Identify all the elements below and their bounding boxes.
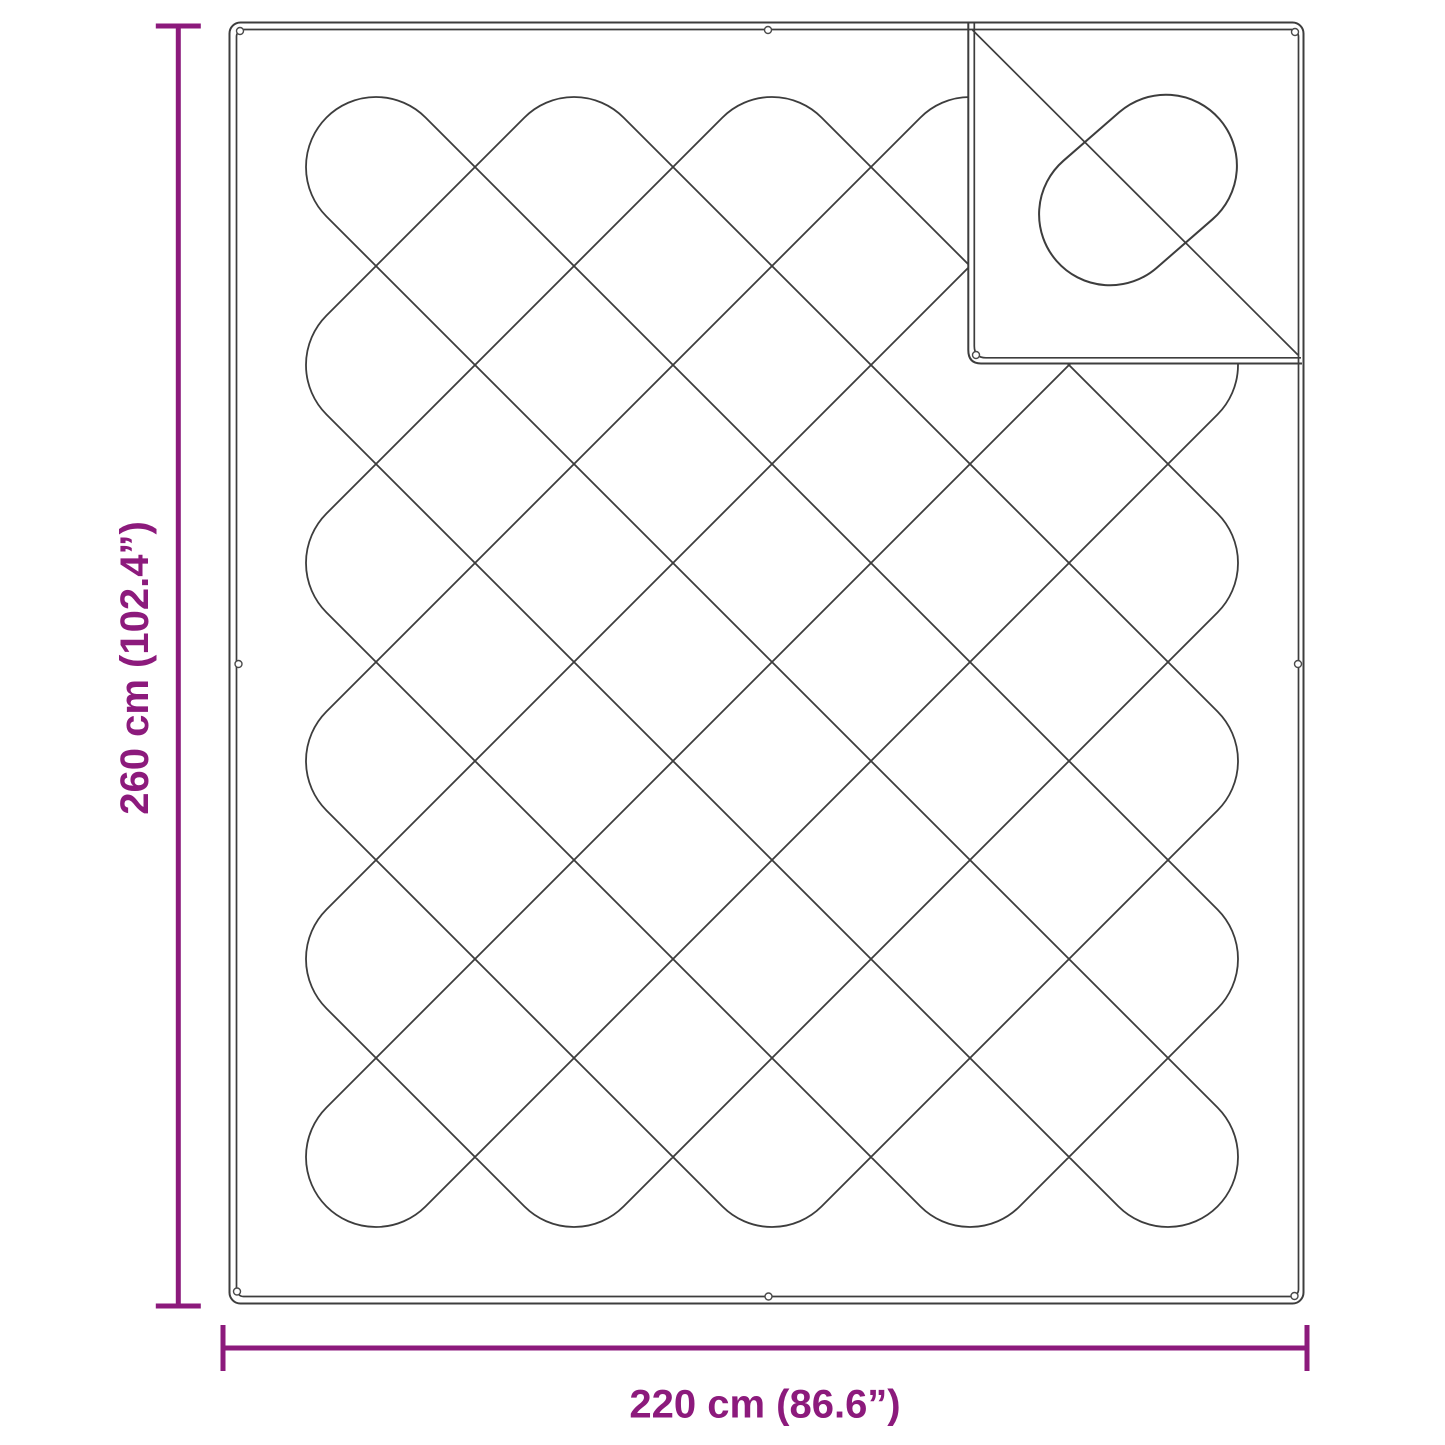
svg-text:220 cm (86.6”): 220 cm (86.6”) (629, 1383, 900, 1427)
svg-text:260 cm (102.4”): 260 cm (102.4”) (113, 521, 157, 815)
